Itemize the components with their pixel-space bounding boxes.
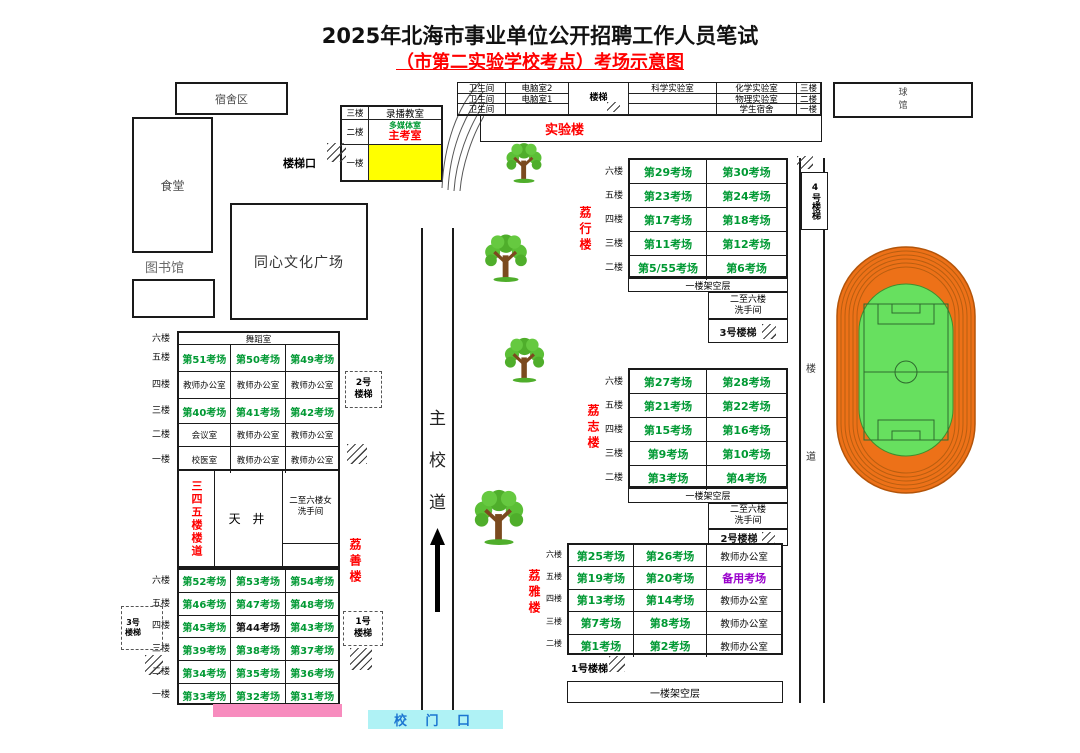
room-cell: 第20考场 [634, 567, 708, 588]
building-row: 第15考场第16考场 [630, 418, 786, 442]
room-cell: 第37考场 [286, 638, 338, 660]
building-row: 第39考场第38考场第37考场 [179, 638, 338, 661]
west-washroom: 二至六楼女洗手间 [283, 471, 338, 544]
lishan-upper: 舞蹈室第51考场第50考场第49考场教师办公室教师办公室教师办公室第40考场第4… [177, 331, 340, 471]
room-cell: 第40考场 [179, 399, 231, 423]
room-cell: 第45考场 [179, 616, 231, 638]
room-cell: 第8考场 [634, 612, 708, 633]
floor-label: 二楼 [601, 464, 627, 488]
ball-hall-box: 球馆 [833, 82, 973, 118]
room-cell: 第35考场 [231, 661, 287, 683]
floor-label: 五楼 [139, 343, 174, 370]
building-row: 第40考场第41考场第42考场 [179, 399, 338, 424]
main-road-char: 校 [429, 446, 446, 471]
building-row: 校医室教师办公室教师办公室 [179, 447, 338, 473]
room-cell: 电脑室1 [506, 94, 569, 105]
room-cell [506, 104, 569, 115]
lixing-floors: 六楼五楼四楼三楼二楼 [601, 158, 627, 278]
floor-label: 三楼 [541, 610, 566, 632]
liya-building: 第25考场第26考场教师办公室第19考场第20考场备用考场第13考场第14考场教… [567, 543, 783, 655]
lixing-building: 第29考场第30考场第23考场第24考场第17考场第18考场第11考场第12考场… [628, 158, 788, 278]
lixing-washroom: 二至六楼洗手间 [708, 292, 788, 319]
building-row: 第25考场第26考场教师办公室 [569, 545, 781, 567]
room-cell: 第30考场 [707, 160, 786, 183]
building-row: 第13考场第14考场教师办公室 [569, 590, 781, 612]
school-gate: 校 门 口 [368, 710, 503, 729]
building-row: 第17考场第18考场 [630, 208, 786, 232]
room-cell: 科学实验室 [629, 83, 717, 94]
stairs-hatch-icon [762, 324, 776, 339]
floor-label: 一楼 [139, 445, 174, 471]
lixing-name: 荔行楼 [579, 206, 591, 254]
room-cell: 第1考场 [569, 635, 634, 657]
building-row: 第3考场第4考场 [630, 466, 786, 490]
stairs-hatch-icon [347, 444, 367, 464]
floor-label: 五楼 [601, 392, 627, 416]
room-cell: 第24考场 [707, 184, 786, 207]
room-cell: 卫生间 [458, 94, 506, 105]
room-cell: 第2考场 [634, 635, 708, 657]
room-cell: 舞蹈室 [179, 333, 338, 344]
lizhi-floors: 六楼五楼四楼三楼二楼 [601, 368, 627, 488]
floor-label: 六楼 [601, 158, 627, 182]
building-row: 会议室教师办公室教师办公室 [179, 424, 338, 447]
room-cell: 第11考场 [630, 232, 707, 255]
floor-label: 三楼 [601, 440, 627, 464]
tree-icon [470, 486, 528, 546]
stairs-hatch-icon [327, 143, 346, 162]
stair3-box: 3号楼梯 [708, 319, 788, 343]
room-cell: 第12考场 [707, 232, 786, 255]
liya-floors: 六楼五楼四楼三楼二楼 [541, 543, 566, 655]
room-cell: 第54考场 [286, 570, 338, 592]
page-title: 2025年北海市事业单位公开招聘工作人员笔试 [0, 20, 1080, 50]
stair1-box-west: 1号楼梯 [343, 611, 383, 646]
room-cell: 第28考场 [707, 370, 786, 393]
building-row: 第23考场第24考场 [630, 184, 786, 208]
floor-label: 三楼 [601, 230, 627, 254]
room-cell: 教师办公室 [707, 635, 781, 657]
recording-building: 三楼 录播教室 二楼 多媒体室 主考室 一楼 [340, 105, 443, 182]
floor-label: 二楼 [541, 633, 566, 655]
room-cell: 卫生间 [458, 83, 506, 94]
lixing-ground: 一楼架空层 [628, 278, 788, 292]
chief-room-label: 主考室 [389, 130, 422, 142]
stairs-hatch-icon [609, 656, 625, 672]
room-cell: 教师办公室 [231, 372, 287, 398]
room-cell: 第13考场 [569, 590, 634, 611]
stair-entrance-label: 楼梯口 [283, 155, 316, 171]
floor-label: 四楼 [139, 370, 174, 397]
corridor-345: 三四五楼楼道 [179, 471, 215, 566]
tree-icon [481, 232, 531, 282]
room-cell: 第46考场 [179, 593, 231, 615]
library-box [132, 279, 215, 318]
stairs-hatch-icon [762, 532, 775, 544]
pink-bar [213, 704, 342, 717]
floor-label: 四楼 [601, 416, 627, 440]
room-cell: 第15考场 [630, 418, 707, 441]
room-cell: 第18考场 [707, 208, 786, 231]
floor-label: 四楼 [601, 206, 627, 230]
building-row: 教师办公室教师办公室教师办公室 [179, 372, 338, 399]
plaza-box: 同心文化广场 [230, 203, 368, 320]
room-cell: 教师办公室 [179, 372, 231, 398]
room-cell: 第27考场 [630, 370, 707, 393]
room-cell: 第5/55考场 [630, 256, 707, 280]
building-row: 第52考场第53考场第54考场 [179, 570, 338, 593]
floor-label: 二楼 [601, 254, 627, 278]
room-cell: 教师办公室 [286, 424, 338, 446]
floor-label: 四楼 [541, 588, 566, 610]
floor-label: 一楼 [139, 682, 174, 705]
floor-label: 二楼 [139, 422, 174, 445]
canteen-box: 食堂 [132, 117, 213, 253]
stairs-hatch-icon [797, 156, 813, 169]
floor-label: 三楼 [342, 107, 369, 120]
room-cell: 第38考场 [231, 638, 287, 660]
building-row: 第27考场第28考场 [630, 370, 786, 394]
room-cell: 第39考场 [179, 638, 231, 660]
room-cell: 备用考场 [707, 567, 781, 588]
floor-label: 六楼 [139, 331, 174, 343]
room-cell: 第49考场 [286, 345, 338, 371]
floor-label: 二楼 [342, 120, 369, 145]
room-cell: 教师办公室 [286, 372, 338, 398]
main-road-char: 道 [429, 488, 446, 513]
room-cell: 第19考场 [569, 567, 634, 588]
room-cell: 第9考场 [630, 442, 707, 465]
building-row: 第9考场第10考场 [630, 442, 786, 466]
room-cell: 电脑室2 [506, 83, 569, 94]
room-cell [629, 94, 717, 105]
room-cell: 第10考场 [707, 442, 786, 465]
floor-label: 六楼 [541, 543, 566, 565]
room-cell: 第44考场 [231, 616, 287, 638]
room-cell: 第3考场 [630, 466, 707, 490]
courtyard: 天 井 [215, 471, 283, 566]
room-cell: 化学实验室 [717, 83, 797, 94]
lizhi-ground: 一楼架空层 [628, 488, 788, 503]
stair1-label: 1号楼梯 [571, 660, 608, 675]
liya-name: 荔雅楼 [528, 569, 540, 617]
floor-label: 二楼 [797, 94, 821, 105]
building-row: 第7考场第8考场教师办公室 [569, 612, 781, 634]
room-cell: 教师办公室 [231, 447, 287, 473]
stairs-hatch-icon [607, 102, 620, 112]
lishan-mid: 三四五楼楼道 天 井 二至六楼女洗手间 [177, 471, 340, 568]
lizhi-building: 第27考场第28考场第21考场第22考场第15考场第16考场第9考场第10考场第… [628, 368, 788, 488]
floor-label: 六楼 [139, 568, 174, 591]
library-label: 图书馆 [145, 257, 184, 276]
room-cell: 教师办公室 [707, 545, 781, 566]
floor-label: 五楼 [541, 565, 566, 587]
stair2-box-west: 2号楼梯 [345, 371, 382, 408]
room-cell: 第25考场 [569, 545, 634, 566]
corridor-char: 楼 [806, 360, 816, 375]
building-row: 第51考场第50考场第49考场 [179, 345, 338, 372]
room-cell: 第14考场 [634, 590, 708, 611]
room-cell: 第52考场 [179, 570, 231, 592]
floor-label: 三楼 [797, 83, 821, 94]
tree-icon [503, 141, 545, 183]
room-cell: 第36考场 [286, 661, 338, 683]
lishan-upper-floors: 六楼五楼四楼三楼二楼一楼 [139, 331, 174, 471]
building-row: 第45考场第44考场第43考场 [179, 616, 338, 639]
building-row: 第5/55考场第6考场 [630, 256, 786, 280]
room-cell: 第51考场 [179, 345, 231, 371]
room-cell: 第50考场 [231, 345, 287, 371]
room-cell [629, 104, 717, 115]
stair4-box: 4号楼梯 [801, 172, 828, 230]
room-cell: 第42考场 [286, 399, 338, 423]
floor-label: 一楼 [797, 104, 821, 115]
room-cell: 物理实验室 [717, 94, 797, 105]
west-washroom-col: 二至六楼女洗手间 [283, 471, 338, 566]
room-cell: 校医室 [179, 447, 231, 473]
room-cell: 第4考场 [707, 466, 786, 490]
room-cell: 第7考场 [569, 612, 634, 633]
floor-label: 五楼 [601, 182, 627, 206]
room-cell: 第48考场 [286, 593, 338, 615]
room-cell: 第17考场 [630, 208, 707, 231]
lishan-lower: 第52考场第53考场第54考场第46考场第47考场第48考场第45考场第44考场… [177, 568, 340, 705]
floor-label: 一楼 [342, 145, 369, 180]
room-cell: 教师办公室 [231, 424, 287, 446]
recording-room: 录播教室 [369, 107, 441, 120]
room-cell: 会议室 [179, 424, 231, 446]
room-cell: 第47考场 [231, 593, 287, 615]
ball-hall-label: 球馆 [897, 87, 909, 114]
building-row: 第11考场第12考场 [630, 232, 786, 256]
page-subtitle: （市第二实验学校考点）考场示意图 [0, 48, 1080, 74]
building-row: 第1考场第2考场教师办公室 [569, 635, 781, 657]
room-cell: 第21考场 [630, 394, 707, 417]
room-cell: 第26考场 [634, 545, 708, 566]
room-cell: 第6考场 [707, 256, 786, 280]
building-row: 第46考场第47考场第48考场 [179, 593, 338, 616]
lizhi-name: 荔志楼 [587, 404, 599, 452]
floor-label: 三楼 [139, 397, 174, 422]
stair3-box-west: 3号楼梯 [121, 606, 163, 650]
up-arrow-icon [428, 528, 447, 614]
room-cell: 第22考场 [707, 394, 786, 417]
room-cell: 教师办公室 [707, 612, 781, 633]
floor-label: 六楼 [601, 368, 627, 392]
east-corridor [799, 158, 825, 703]
lizhi-washroom: 二至六楼洗手间 [708, 503, 788, 529]
lab-stair-cell: 楼梯 [569, 83, 629, 115]
lishan-name: 荔善楼 [349, 538, 361, 586]
building-row: 第29考场第30考场 [630, 160, 786, 184]
building-row: 第34考场第35考场第36考场 [179, 661, 338, 684]
stairs-hatch-icon [145, 655, 163, 675]
building-row: 第19考场第20考场备用考场 [569, 567, 781, 589]
room-cell: 第53考场 [231, 570, 287, 592]
ground-floor-yellow [369, 145, 441, 180]
room-cell: 第34考场 [179, 661, 231, 683]
dorm-area-box: 宿舍区 [175, 82, 288, 115]
lab-building: 卫生间 电脑室2 楼梯 科学实验室 化学实验室 三楼 卫生间 电脑室1 物理实验… [457, 82, 822, 116]
room-cell: 第16考场 [707, 418, 786, 441]
building-row: 舞蹈室 [179, 333, 338, 345]
main-road-char: 主 [429, 404, 446, 429]
lab-forecourt-box [480, 116, 822, 142]
room-cell: 第23考场 [630, 184, 707, 207]
tree-icon [501, 334, 548, 384]
room-cell: 卫生间 [458, 104, 506, 115]
room-cell: 第29考场 [630, 160, 707, 183]
room-cell: 教师办公室 [707, 590, 781, 611]
corridor-char: 道 [806, 448, 816, 463]
room-cell: 第41考场 [231, 399, 287, 423]
lab-building-name: 实验楼 [545, 119, 584, 138]
room-cell: 教师办公室 [286, 447, 338, 473]
room-cell: 第43考场 [286, 616, 338, 638]
stairs-hatch-icon [350, 648, 372, 670]
liya-ground: 一楼架空层 [567, 681, 783, 703]
building-row: 第21考场第22考场 [630, 394, 786, 418]
sports-field [836, 246, 976, 494]
room-cell: 学生宿舍 [717, 104, 797, 115]
chief-exam-room: 多媒体室 主考室 [369, 120, 441, 145]
